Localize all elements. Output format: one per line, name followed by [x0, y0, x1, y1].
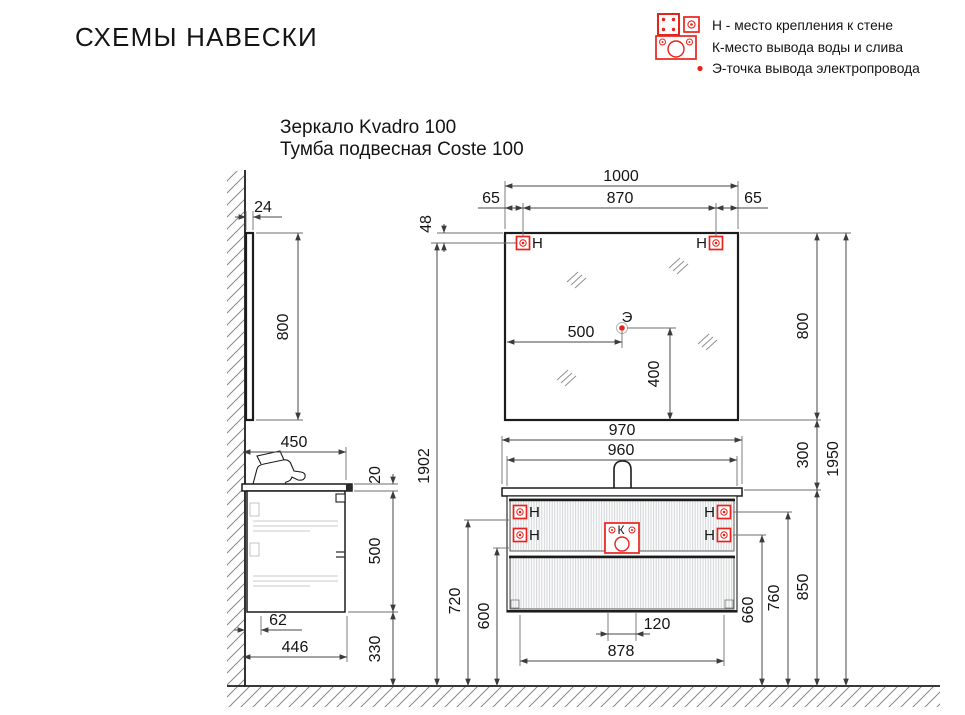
svg-text:1902: 1902	[416, 448, 433, 484]
countertop-side	[242, 484, 352, 491]
svg-text:970: 970	[609, 422, 636, 439]
dim-body-depth: 446	[243, 616, 347, 662]
product-name-mirror: Зеркало Kvadro 100	[280, 117, 456, 138]
dim-mount-from-top: 48	[418, 215, 516, 252]
svg-text:960: 960	[608, 442, 635, 459]
dim-total-height: 1950	[825, 233, 846, 686]
drawer-rail-bracket	[336, 494, 345, 502]
legend-mount-point-icon	[684, 17, 699, 32]
mount-label: Н	[532, 235, 543, 252]
svg-text:1950: 1950	[825, 441, 842, 477]
svg-text:62: 62	[269, 612, 287, 629]
floor-hatch	[227, 687, 940, 707]
svg-text:720: 720	[447, 588, 464, 615]
countertop-front	[502, 488, 742, 496]
electric-label: Э	[622, 309, 633, 326]
technical-drawing: СХЕМЫ НАВЕСКИ Н - место крепления к стен…	[0, 0, 965, 715]
wall-hatch	[227, 171, 244, 686]
mount-label: Н	[529, 527, 540, 544]
svg-text:400: 400	[646, 361, 663, 388]
floor	[227, 686, 940, 707]
legend-electric-dot-icon	[697, 66, 702, 71]
mirror-side-view	[246, 233, 253, 420]
dim-mirror-gap: 300	[795, 442, 812, 469]
mount-label: Н	[529, 504, 540, 521]
dim-floor-clearance-side: 330	[367, 612, 393, 686]
mount-icon-mirror-left	[517, 237, 530, 250]
cabinet-side-view	[242, 451, 352, 612]
mounting-scheme-page: СХЕМЫ НАВЕСКИ Н - место крепления к стен…	[0, 0, 965, 715]
legend-mount-plate-icon	[658, 14, 679, 35]
svg-text:878: 878	[608, 643, 635, 660]
mount-label: Н	[704, 527, 715, 544]
mount-icon-cabinet-bottom-left	[514, 529, 527, 542]
svg-text:1000: 1000	[603, 168, 639, 185]
svg-text:446: 446	[282, 639, 309, 656]
wall	[227, 170, 245, 686]
svg-text:24: 24	[254, 199, 272, 216]
dim-mirror-height-side: 800	[256, 233, 303, 420]
svg-text:120: 120	[644, 616, 671, 633]
svg-text:48: 48	[418, 215, 435, 233]
svg-text:800: 800	[275, 314, 292, 341]
page-title: СХЕМЫ НАВЕСКИ	[75, 22, 318, 52]
water-label: К	[618, 523, 625, 537]
legend-mount-label: Н - место крепления к стене	[712, 18, 893, 33]
legend-electric-label: Э-точка вывода электропровода	[712, 61, 920, 76]
svg-text:760: 760	[766, 585, 783, 612]
legend-water-outlet-icon	[656, 36, 696, 59]
svg-text:500: 500	[568, 324, 595, 341]
mount-icon-mirror-right	[710, 237, 723, 250]
countertop-edge-cap	[346, 484, 352, 491]
svg-text:600: 600	[476, 603, 493, 630]
dim-mirror-mount-spacing: 65 870 65	[478, 190, 768, 236]
dim-mount-spacing-cabinet: 878	[520, 615, 724, 666]
product-name-cabinet: Тумба подвесная Coste 100	[280, 139, 524, 160]
svg-text:870: 870	[607, 190, 634, 207]
dim-mirror-height-front: 800	[795, 313, 812, 340]
dim-mount-low-height: 660	[733, 535, 766, 686]
dim-countertop-thickness: 20	[354, 466, 398, 501]
dim-cabinet-height: 500	[348, 491, 398, 612]
dim-countertop-height: 850	[795, 574, 812, 601]
svg-text:20: 20	[367, 466, 384, 484]
svg-text:450: 450	[281, 434, 308, 451]
electric-dot	[619, 325, 625, 331]
bottom-drawer-front	[510, 556, 734, 609]
dim-rail-height-lower: 600	[476, 548, 509, 686]
mount-label: Н	[696, 235, 707, 252]
mount-icon-cabinet-top-left	[514, 506, 527, 519]
legend-water-label: К-место вывода воды и слива	[712, 40, 903, 55]
svg-text:500: 500	[367, 538, 384, 565]
svg-text:330: 330	[367, 636, 384, 663]
dim-mirror-mount-height: 1902	[416, 243, 437, 686]
mount-icon-cabinet-bottom-right	[718, 529, 731, 542]
dim-drain-spacing: 120	[596, 613, 670, 641]
svg-text:65: 65	[744, 190, 762, 207]
svg-text:65: 65	[482, 190, 500, 207]
cabinet-body-side	[247, 491, 345, 612]
mount-icon-cabinet-top-right	[718, 506, 731, 519]
svg-text:660: 660	[740, 597, 757, 624]
faucet-front	[614, 461, 631, 488]
mount-label: Н	[704, 504, 715, 521]
